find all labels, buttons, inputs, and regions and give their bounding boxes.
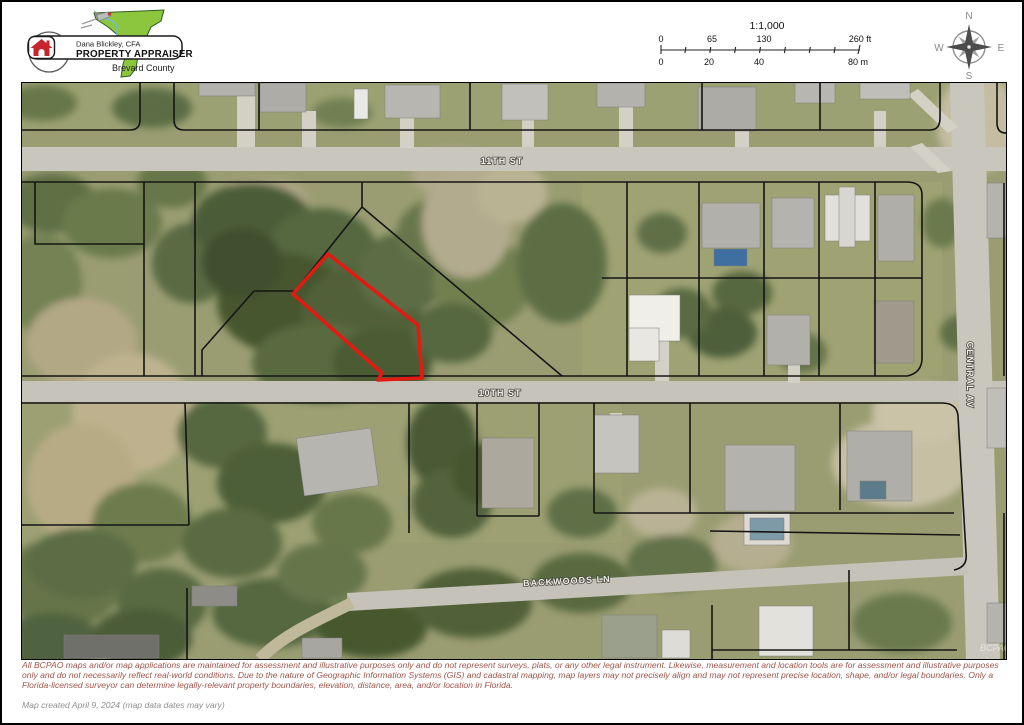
disclaimer-line-1: All BCPAO maps and/or map applications a… [22, 660, 1012, 670]
scale-ratio: 1:1,000 [749, 20, 784, 32]
scale-bar: 1:1,000 0 65 130 260 ft 0 [647, 12, 887, 72]
compass-n: N [965, 11, 972, 22]
scale-m-0: 0 [658, 57, 663, 67]
scale-m-20: 20 [704, 57, 714, 67]
compass-s: S [966, 71, 973, 80]
header: Dana Blickley, CFA PROPERTY APPRAISER Br… [2, 2, 1024, 80]
street-label-10th: 10TH ST [478, 388, 521, 398]
compass-w: W [934, 43, 944, 54]
map-created-date: Map created April 9, 2024 (map data date… [22, 700, 1012, 710]
compass-icon [946, 24, 992, 70]
scale-m-80: 80 m [848, 57, 868, 67]
property-appraiser-logo: Dana Blickley, CFA PROPERTY APPRAISER Br… [24, 6, 224, 80]
logo-county: Brevard County [112, 63, 175, 73]
logo-owner-name: Dana Blickley, CFA [76, 40, 141, 49]
scale-ft-0: 0 [658, 34, 663, 44]
scale-ft-65: 65 [707, 34, 717, 44]
bcpao-map-page: Dana Blickley, CFA PROPERTY APPRAISER Br… [0, 0, 1024, 725]
logo-title: PROPERTY APPRAISER [76, 49, 193, 60]
disclaimer-line-3: Florida-licensed surveyor can determine … [22, 680, 1012, 690]
footer: All BCPAO maps and/or map applications a… [22, 660, 1012, 710]
compass-e: E [998, 43, 1005, 54]
bcpao-watermark: BCPAO [980, 643, 1006, 653]
compass-rose: N S W E [932, 6, 1008, 80]
street-label-central: CENTRAL AV [965, 342, 975, 409]
street-label-11th: 11TH ST [481, 156, 524, 166]
scale-m-40: 40 [754, 57, 764, 67]
scale-ft-260: 260 ft [849, 34, 872, 44]
disclaimer-line-2: only and do not necessarily reflect real… [22, 670, 1012, 680]
scale-ft-130: 130 [756, 34, 771, 44]
scale-bar-line [661, 45, 860, 54]
aerial-map-viewport[interactable]: 11TH ST 10TH ST BACKWOODS LN CENTRAL AV … [21, 82, 1007, 660]
